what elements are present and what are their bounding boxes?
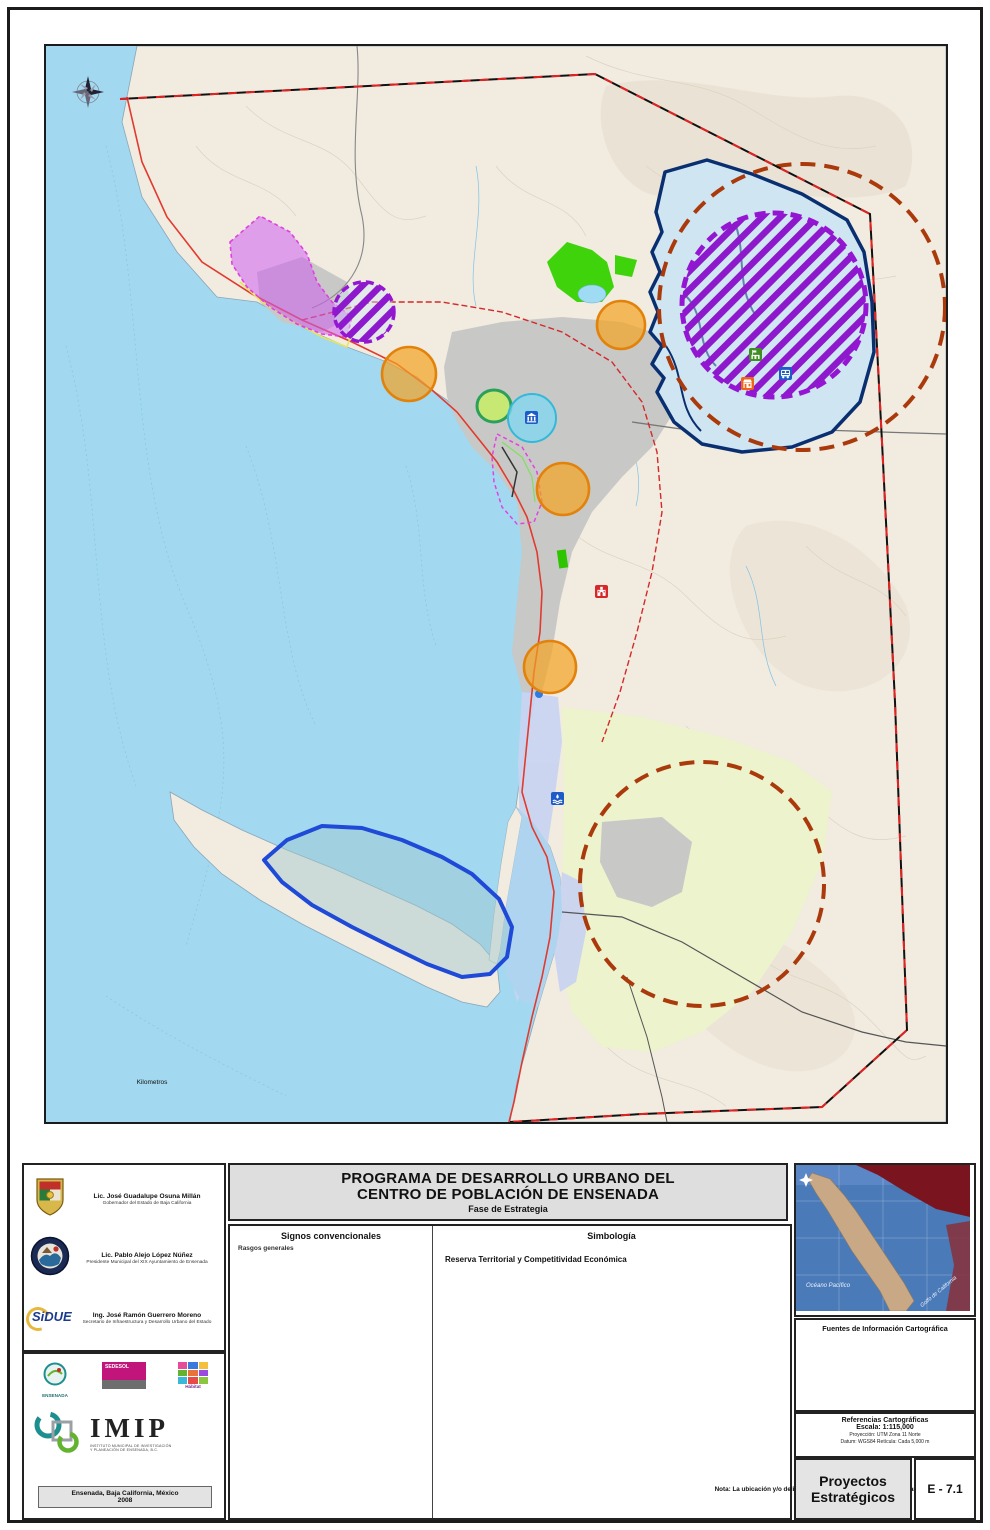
map-title-phase: Fase de Estrategia: [230, 1204, 786, 1214]
sheet-name: Proyectos Estratégicos: [796, 1473, 910, 1505]
sidue-logo: SiDUE: [24, 1306, 76, 1330]
presa-emilio-lopez-zamora: [578, 285, 606, 303]
referencias-proyeccion: Proyección: UTM Zona 11 Norte: [796, 1432, 974, 1438]
mayor-title: Presidente Municipal del XIX Ayuntamient…: [76, 1260, 218, 1265]
ensenada-municipal-seal: [24, 1236, 76, 1281]
scale-bar: Kilometros: [137, 1079, 168, 1086]
officials-box: Lic. José Guadalupe Osuna Millán Goberna…: [22, 1163, 226, 1352]
imip-acronym: IMIP: [90, 1413, 171, 1444]
credits-footer: Ensenada, Baja California, México 2008: [38, 1486, 212, 1508]
sheet-code-box: E - 7.1: [914, 1458, 976, 1520]
campus-uabc-icon: [749, 348, 762, 361]
secretary-title: Secretario de Infraestructura y Desarrol…: [76, 1320, 218, 1325]
legend-section: Rasgos generales: [238, 1245, 432, 1252]
legend-section-title: Rasgos generales: [238, 1245, 432, 1252]
referencias-box: Referencias Cartográficas Escala: 1:115,…: [794, 1412, 976, 1458]
reserva-subheader: Reserva Territorial y Competitividad Eco…: [445, 1255, 790, 1264]
map-title-line1: PROGRAMA DE DESARROLLO URBANO DEL: [230, 1171, 786, 1187]
teleferico-zone: [477, 390, 511, 422]
bc-coat-of-arms: [24, 1178, 76, 1221]
scale-bar-title: Kilometros: [137, 1079, 168, 1086]
referencias-datum: Datum: WGS84 Retícula: Cada 5,000 m: [796, 1439, 974, 1445]
signos-header: Signos convencionales: [230, 1226, 432, 1241]
referencias-header: Referencias Cartográficas: [796, 1414, 974, 1424]
official-mayor: Lic. Pablo Alejo López Núñez Presidente …: [24, 1229, 224, 1287]
map-canvas: Kilometros: [44, 44, 948, 1124]
reserva-industrial-zone: [682, 213, 866, 397]
fuentes-header: Fuentes de Información Cartográfica: [796, 1320, 974, 1333]
ensenada-city-logo: ENSENADA: [40, 1362, 70, 1398]
habitat-logo: Hábitat: [178, 1362, 208, 1389]
legend-box: Signos convencionales Rasgos generales S…: [228, 1224, 792, 1520]
sheet-code: E - 7.1: [927, 1482, 962, 1496]
title-box: PROGRAMA DE DESARROLLO URBANO DEL CENTRO…: [228, 1163, 788, 1221]
governor-title: Gobernador del Estado de Baja California: [76, 1201, 218, 1206]
main-map-svg: Kilometros: [46, 46, 946, 1122]
governor-name: Lic. José Guadalupe Osuna Millán: [76, 1193, 218, 1200]
locator-map: Océano Pacífico Golfo de California: [794, 1163, 976, 1317]
desaladora-icon: [551, 792, 564, 805]
map-title-line2: CENTRO DE POBLACIÓN DE ENSENADA: [230, 1187, 786, 1203]
sheet-name-box: Proyectos Estratégicos: [794, 1458, 912, 1520]
official-secretary: SiDUE Ing. José Ramón Guerrero Moreno Se…: [24, 1291, 224, 1345]
reserva-industrial-zone-sauzal: [334, 282, 394, 342]
official-governor: Lic. José Guadalupe Osuna Millán Goberna…: [24, 1171, 224, 1227]
abasto-icon: [741, 377, 754, 390]
imip-logo: IMIP INSTITUTO MUNICIPAL DE INVESTIGACIÓ…: [32, 1410, 216, 1454]
credits-box: ENSENADA SEDESOL Hábitat IMIP INSTITUTO …: [22, 1352, 226, 1520]
simbologia-header: Simbología: [433, 1226, 790, 1241]
fuentes-box: Fuentes de Información Cartográfica: [794, 1318, 976, 1412]
palacio-icon: [595, 585, 608, 598]
secretary-name: Ing. José Ramón Guerrero Moreno: [76, 1312, 218, 1319]
signos-column: Signos convencionales Rasgos generales: [230, 1226, 432, 1518]
map-sheet: { "title_block": { "line1": "PROGRAMA DE…: [0, 0, 990, 1530]
terminal-icon: [779, 367, 792, 380]
convenciones-icon: [525, 411, 538, 424]
referencias-escala: Escala: 1:115,000: [796, 1424, 974, 1431]
simbologia-column: Simbología Reserva Territorial y Competi…: [433, 1226, 790, 1518]
mayor-name: Lic. Pablo Alejo López Núñez: [76, 1252, 218, 1259]
sedesol-logo: SEDESOL: [102, 1362, 146, 1389]
